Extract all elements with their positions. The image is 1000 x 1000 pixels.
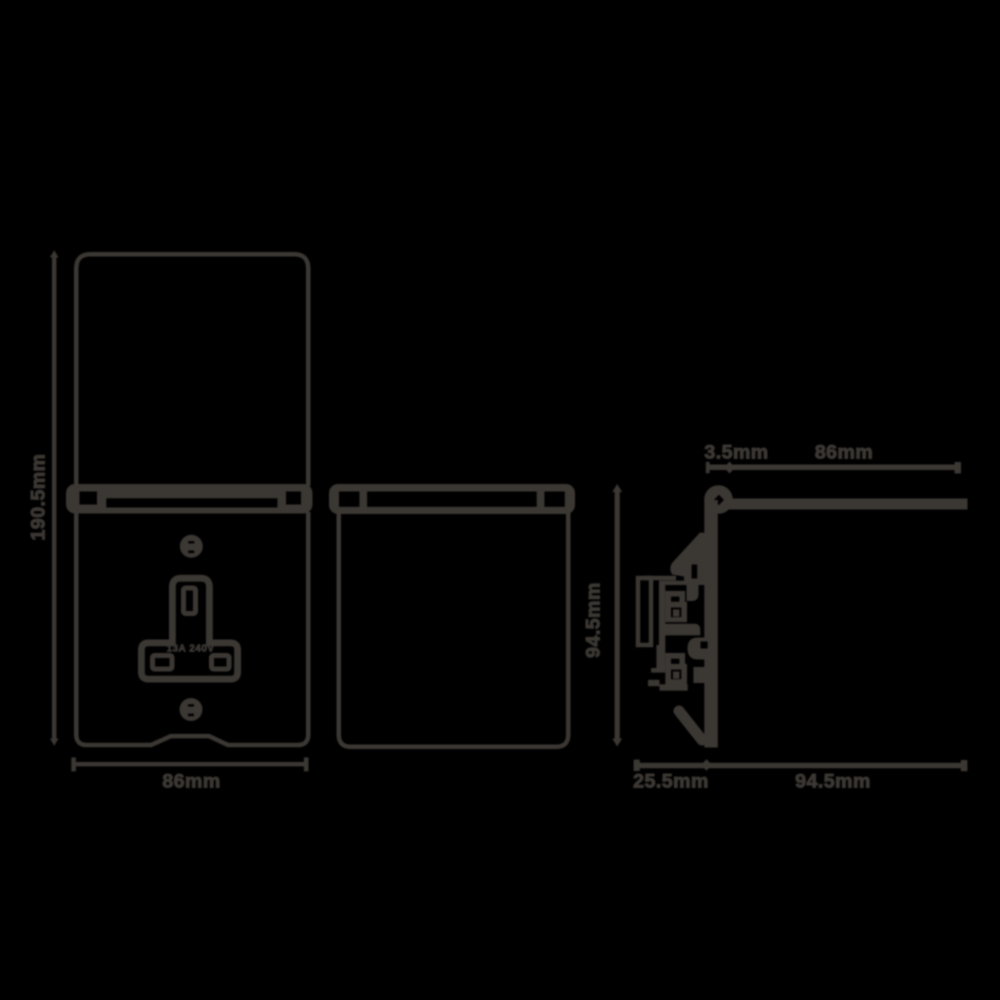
svg-text:86mm: 86mm (815, 442, 873, 464)
svg-text:13A 240V: 13A 240V (166, 644, 214, 655)
svg-text:94.5mm: 94.5mm (583, 582, 605, 658)
svg-text:25.5mm: 25.5mm (633, 771, 709, 793)
svg-text:86mm: 86mm (162, 771, 220, 793)
svg-text:94.5mm: 94.5mm (795, 771, 871, 793)
svg-text:3.5mm: 3.5mm (704, 442, 768, 464)
svg-text:190.5mm: 190.5mm (28, 454, 50, 541)
